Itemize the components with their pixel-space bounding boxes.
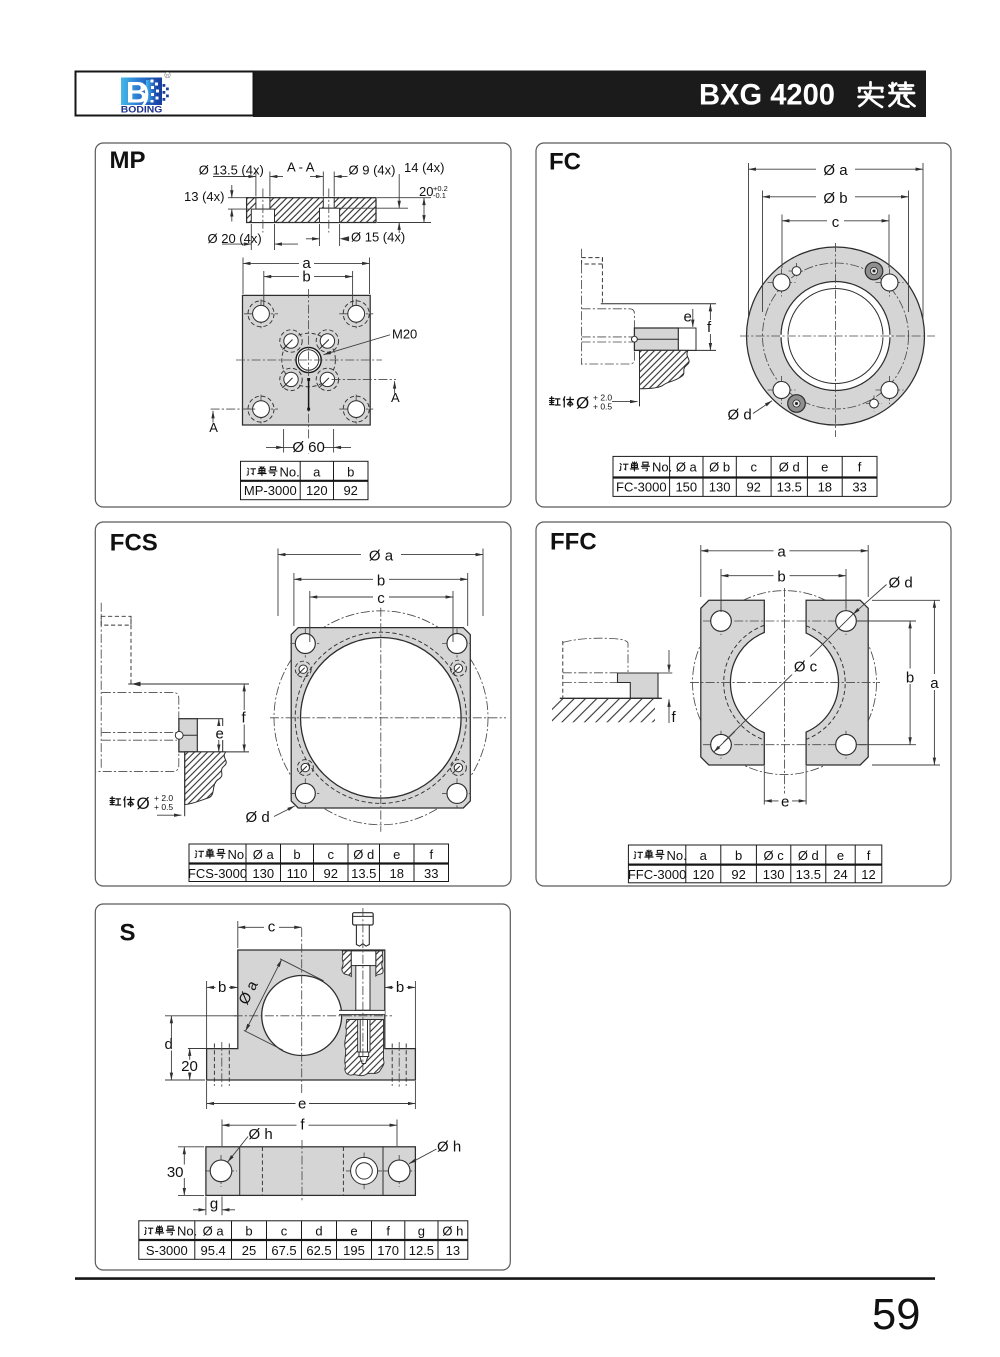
- svg-text:Ø 15 (4x): Ø 15 (4x): [351, 230, 405, 245]
- svg-text:b: b: [377, 572, 385, 589]
- svg-text:b: b: [293, 847, 300, 862]
- svg-text:Ø h: Ø h: [442, 1224, 463, 1239]
- svg-text:+ 0.5: + 0.5: [593, 402, 612, 412]
- svg-text:b: b: [735, 848, 742, 863]
- svg-text:b: b: [396, 979, 404, 996]
- svg-text:Ø a: Ø a: [253, 847, 275, 862]
- svg-text:Ø b: Ø b: [709, 460, 730, 475]
- svg-text:120: 120: [692, 867, 714, 882]
- svg-text:g: g: [418, 1224, 425, 1239]
- svg-text:f: f: [386, 1224, 390, 1239]
- svg-text:e: e: [837, 848, 844, 863]
- svg-text:59: 59: [872, 1291, 920, 1339]
- svg-text:18: 18: [818, 480, 832, 495]
- svg-text:Ø b: Ø b: [823, 190, 847, 207]
- svg-text:c: c: [281, 1224, 288, 1239]
- svg-text:12.5: 12.5: [409, 1243, 434, 1258]
- svg-text:170: 170: [377, 1243, 399, 1258]
- svg-text:33: 33: [852, 480, 866, 495]
- svg-text:92: 92: [746, 480, 760, 495]
- svg-text:30: 30: [167, 1164, 184, 1181]
- svg-text:e: e: [393, 847, 400, 862]
- svg-text:S: S: [120, 920, 136, 947]
- svg-text:12: 12: [861, 867, 875, 882]
- svg-text:e: e: [350, 1224, 357, 1239]
- svg-text:No.: No.: [228, 847, 248, 862]
- svg-text:FCS: FCS: [110, 530, 158, 557]
- svg-text:e: e: [216, 725, 224, 742]
- svg-text:c: c: [377, 590, 385, 607]
- svg-text:Ø h: Ø h: [249, 1126, 273, 1143]
- svg-text:Ø 13.5 (4x): Ø 13.5 (4x): [199, 163, 264, 178]
- svg-text:150: 150: [675, 480, 697, 495]
- svg-text:13.5: 13.5: [796, 867, 821, 882]
- svg-text:20: 20: [181, 1058, 198, 1075]
- svg-text:A: A: [209, 420, 218, 435]
- svg-text:d: d: [165, 1036, 173, 1053]
- svg-text:+ 0.5: + 0.5: [154, 802, 173, 812]
- svg-text:MP-3000: MP-3000: [244, 483, 297, 498]
- svg-text:f: f: [867, 848, 871, 863]
- svg-text:c: c: [832, 214, 840, 231]
- svg-text:e: e: [821, 460, 828, 475]
- svg-text:Ø d: Ø d: [728, 407, 752, 424]
- svg-text:24: 24: [833, 867, 847, 882]
- svg-text:b: b: [347, 464, 354, 479]
- svg-text:e: e: [781, 793, 789, 810]
- svg-text:a: a: [930, 675, 939, 692]
- svg-text:92: 92: [324, 866, 338, 881]
- svg-text:Ø d: Ø d: [246, 809, 270, 826]
- svg-text:b: b: [245, 1224, 252, 1239]
- svg-text:Ø 60: Ø 60: [292, 439, 325, 456]
- svg-text:120: 120: [306, 483, 328, 498]
- svg-text:95.4: 95.4: [200, 1243, 225, 1258]
- svg-text:BXG 4200: BXG 4200: [699, 79, 835, 112]
- svg-text:Ø a: Ø a: [369, 548, 394, 565]
- svg-text:A: A: [391, 390, 400, 405]
- svg-text:Ø d: Ø d: [779, 460, 800, 475]
- svg-text:Ø: Ø: [137, 794, 150, 813]
- svg-text:Ø 20 (4x): Ø 20 (4x): [208, 231, 262, 246]
- svg-text:BODING: BODING: [121, 105, 163, 115]
- svg-text:13: 13: [446, 1243, 460, 1258]
- svg-text:130: 130: [709, 480, 731, 495]
- svg-text:18: 18: [390, 866, 404, 881]
- svg-text:13.5: 13.5: [351, 866, 376, 881]
- svg-text:FFC: FFC: [550, 529, 597, 556]
- svg-text:92: 92: [731, 867, 745, 882]
- svg-text:Ø c: Ø c: [794, 659, 818, 676]
- svg-text:b: b: [777, 569, 785, 586]
- svg-text:FC: FC: [549, 149, 581, 176]
- svg-text:FCS-3000: FCS-3000: [188, 866, 247, 881]
- svg-text:S-3000: S-3000: [146, 1243, 188, 1258]
- svg-text:b: b: [906, 669, 914, 686]
- svg-text:c: c: [750, 460, 757, 475]
- svg-text:13.5: 13.5: [777, 480, 802, 495]
- svg-text:130: 130: [252, 866, 274, 881]
- svg-text:Ø: Ø: [576, 394, 589, 413]
- svg-text:130: 130: [763, 867, 785, 882]
- svg-text:-0.1: -0.1: [433, 191, 446, 200]
- svg-text:No.: No.: [177, 1224, 197, 1239]
- svg-text:Ø d: Ø d: [353, 847, 374, 862]
- svg-text:a: a: [700, 848, 708, 863]
- svg-text:f: f: [858, 460, 862, 475]
- svg-text:110: 110: [287, 866, 308, 881]
- svg-text:Ø a: Ø a: [203, 1224, 225, 1239]
- svg-text:a: a: [777, 544, 786, 561]
- svg-text:b: b: [302, 268, 310, 285]
- svg-text:20: 20: [419, 184, 433, 199]
- svg-text:f: f: [429, 847, 433, 862]
- svg-text:33: 33: [424, 866, 438, 881]
- svg-text:): ): [142, 81, 149, 106]
- svg-text:92: 92: [343, 483, 357, 498]
- svg-text:b: b: [218, 979, 226, 996]
- svg-text:a: a: [313, 464, 321, 479]
- svg-text:Ø c: Ø c: [763, 848, 784, 863]
- svg-text:67.5: 67.5: [271, 1243, 296, 1258]
- svg-text:195: 195: [343, 1243, 365, 1258]
- svg-text:Ø 9 (4x): Ø 9 (4x): [349, 163, 396, 178]
- svg-text:e: e: [298, 1095, 306, 1112]
- svg-text:Ø d: Ø d: [798, 848, 819, 863]
- svg-text:FFC-3000: FFC-3000: [628, 867, 687, 882]
- svg-text:No.: No.: [667, 848, 687, 863]
- svg-text:d: d: [315, 1224, 322, 1239]
- svg-text:13 (4x): 13 (4x): [184, 189, 224, 204]
- svg-text:Ø a: Ø a: [676, 460, 698, 475]
- svg-text:Ø a: Ø a: [823, 162, 848, 179]
- svg-text:c: c: [328, 847, 335, 862]
- svg-text:25: 25: [242, 1243, 256, 1258]
- svg-text:62.5: 62.5: [306, 1243, 331, 1258]
- svg-text:A - A: A - A: [287, 160, 315, 175]
- svg-text:No.: No.: [652, 460, 672, 475]
- svg-text:M20: M20: [392, 327, 417, 342]
- svg-text:FC-3000: FC-3000: [616, 480, 667, 495]
- svg-text:14 (4x): 14 (4x): [404, 160, 444, 175]
- svg-text:MP: MP: [110, 147, 146, 174]
- svg-text:Ø d: Ø d: [889, 575, 913, 592]
- svg-text:g: g: [210, 1196, 218, 1213]
- svg-text:c: c: [268, 918, 276, 935]
- svg-text:e: e: [684, 309, 692, 326]
- svg-text:Ø h: Ø h: [437, 1139, 461, 1156]
- svg-text:No.: No.: [280, 464, 300, 479]
